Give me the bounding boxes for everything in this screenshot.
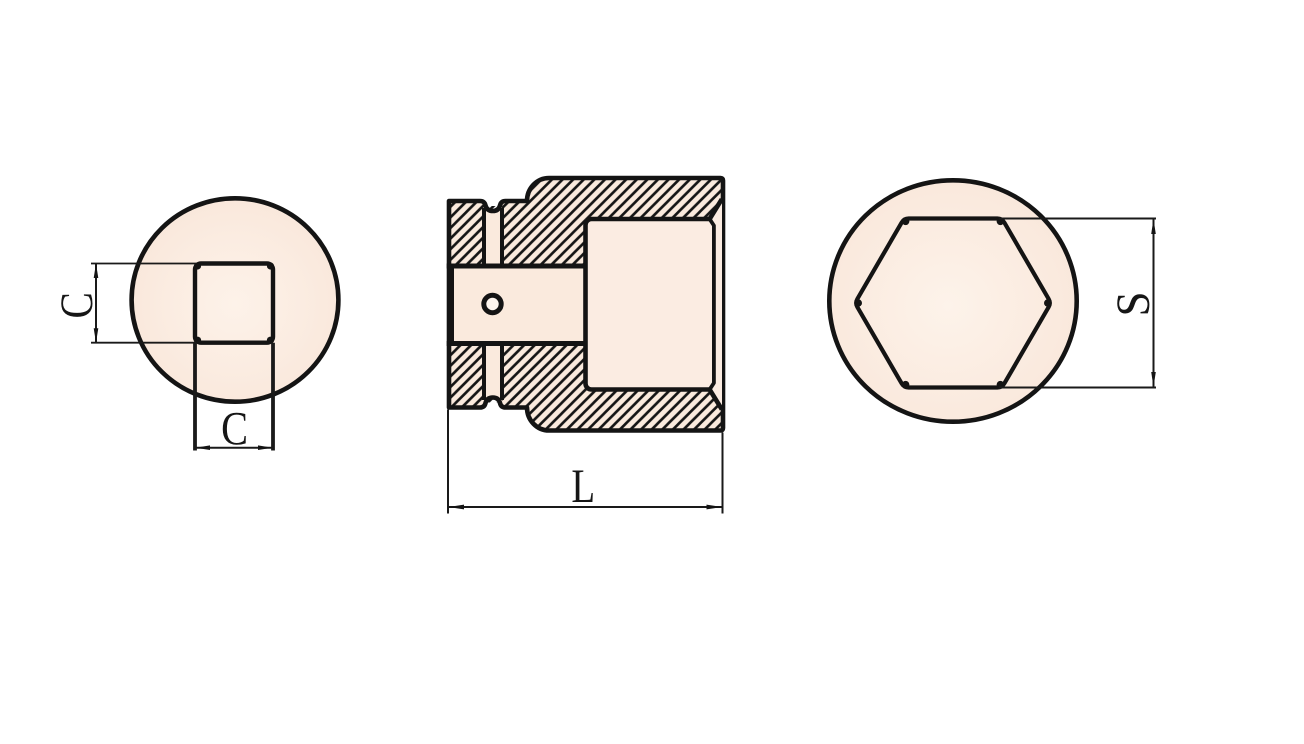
svg-text:S: S — [1107, 291, 1161, 316]
svg-text:L: L — [571, 460, 595, 513]
svg-text:C: C — [51, 292, 103, 318]
svg-text:C: C — [221, 402, 248, 455]
